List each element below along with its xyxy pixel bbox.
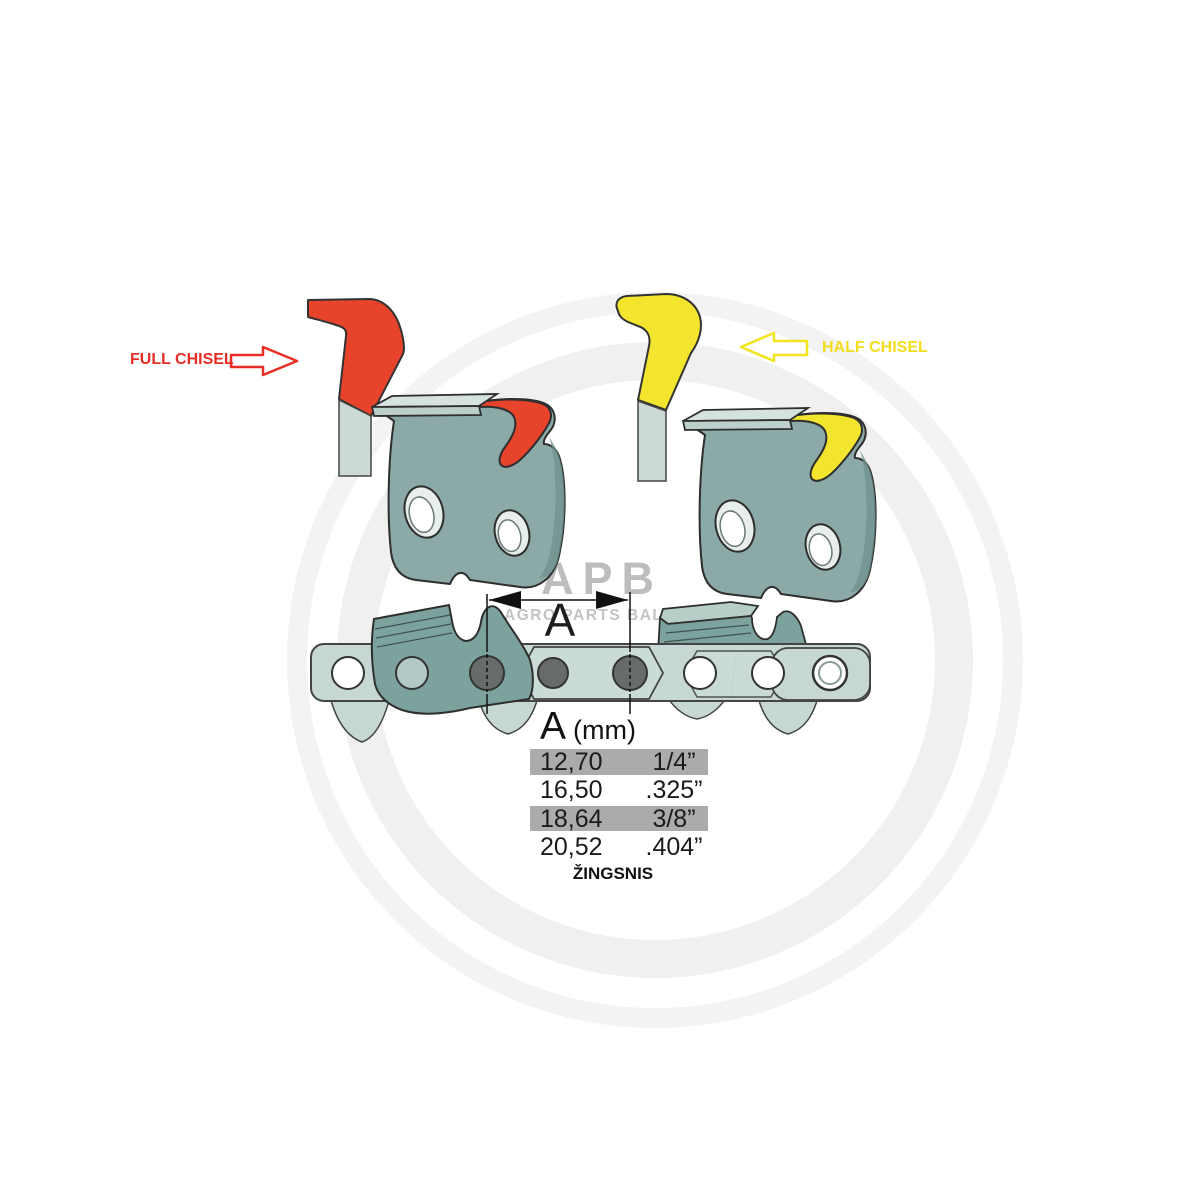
pitch-table-row: 18,64 3/8”: [530, 806, 708, 832]
pitch-inch-value: .325”: [640, 777, 708, 803]
product-diagram-canvas: APB AGRO PARTS BALTIJA: [0, 0, 1188, 1188]
pitch-mm-value: 20,52: [540, 833, 603, 861]
full-chisel-cutter-3d: [372, 394, 565, 587]
full-chisel-arrow-icon: [231, 347, 297, 375]
pitch-table: 12,70 1/4” 16,50 .325” 18,64 3/8” 20,52 …: [530, 749, 708, 862]
chain-cutter-near: [372, 605, 533, 714]
pitch-table-header: A (mm): [540, 707, 636, 746]
pitch-inch-value: .404”: [640, 834, 708, 860]
half-chisel-cutter-3d: [683, 408, 876, 601]
pitch-mm-value: 12,70: [540, 748, 603, 776]
half-chisel-profile: [616, 294, 701, 481]
pitch-dimension-label: A: [532, 597, 588, 643]
half-chisel-label: HALF CHISEL: [822, 339, 928, 357]
pitch-table-header-symbol: A: [540, 707, 566, 746]
pitch-inch-value: 1/4”: [640, 749, 708, 775]
pitch-table-header-unit: (mm): [573, 717, 636, 744]
pitch-table-row: 12,70 1/4”: [530, 749, 708, 775]
full-chisel-label: FULL CHISEL: [130, 351, 234, 369]
pitch-inch-value: 3/8”: [640, 806, 708, 832]
pitch-table-row: 16,50 .325”: [530, 777, 708, 803]
half-chisel-shank: [638, 401, 666, 481]
full-chisel-profile: [308, 299, 404, 476]
pitch-table-row: 20,52 .404”: [530, 834, 708, 860]
chainsaw-chain-drawing: [0, 0, 1188, 1188]
half-chisel-profile-shape: [616, 294, 701, 410]
pitch-mm-value: 16,50: [540, 776, 603, 804]
pitch-mm-value: 18,64: [540, 805, 603, 833]
pitch-table-caption: ŽINGSNIS: [528, 864, 698, 884]
half-chisel-arrow-icon: [741, 333, 807, 361]
